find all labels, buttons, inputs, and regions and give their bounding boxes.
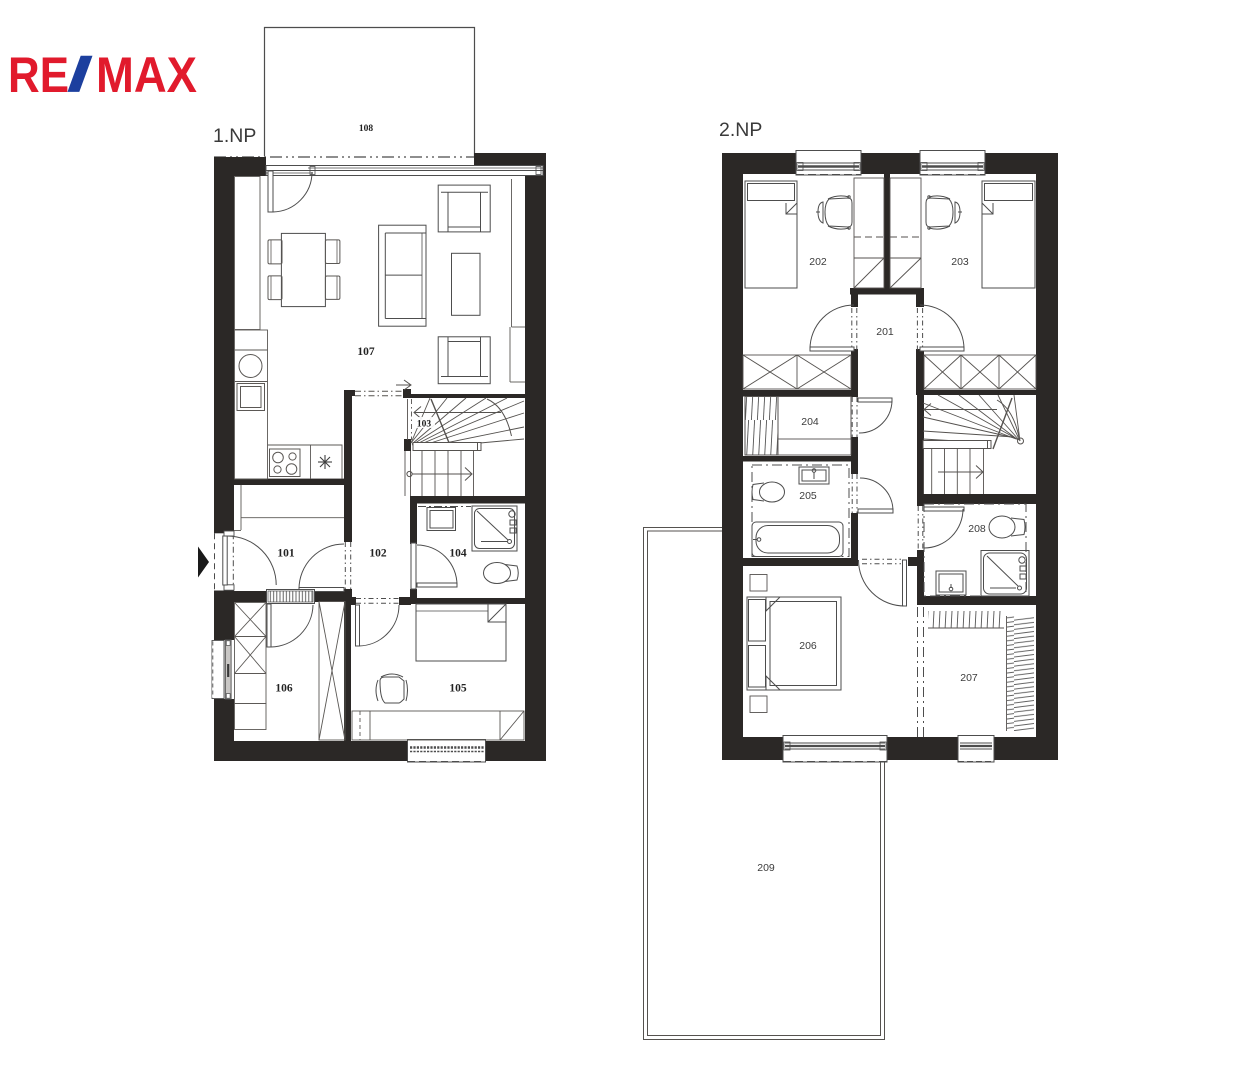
svg-text:102: 102 [369, 548, 387, 560]
svg-text:107: 107 [357, 346, 375, 358]
svg-text:2.NP: 2.NP [719, 119, 762, 141]
svg-text:106: 106 [275, 683, 293, 695]
svg-text:1.NP: 1.NP [213, 125, 256, 147]
svg-text:105: 105 [449, 683, 467, 695]
svg-text:101: 101 [277, 548, 295, 560]
svg-text:103: 103 [417, 420, 432, 430]
svg-text:RE: RE [8, 47, 69, 103]
svg-text:206: 206 [799, 640, 817, 652]
svg-text:207: 207 [960, 672, 978, 684]
svg-text:204: 204 [801, 416, 819, 428]
svg-text:MAX: MAX [96, 47, 197, 103]
svg-text:202: 202 [809, 256, 827, 268]
svg-text:203: 203 [951, 256, 969, 268]
svg-text:201: 201 [876, 326, 894, 338]
svg-text:209: 209 [757, 862, 775, 874]
svg-text:104: 104 [449, 548, 467, 560]
svg-text:205: 205 [799, 490, 817, 502]
svg-text:108: 108 [359, 124, 374, 134]
svg-text:208: 208 [968, 523, 986, 535]
